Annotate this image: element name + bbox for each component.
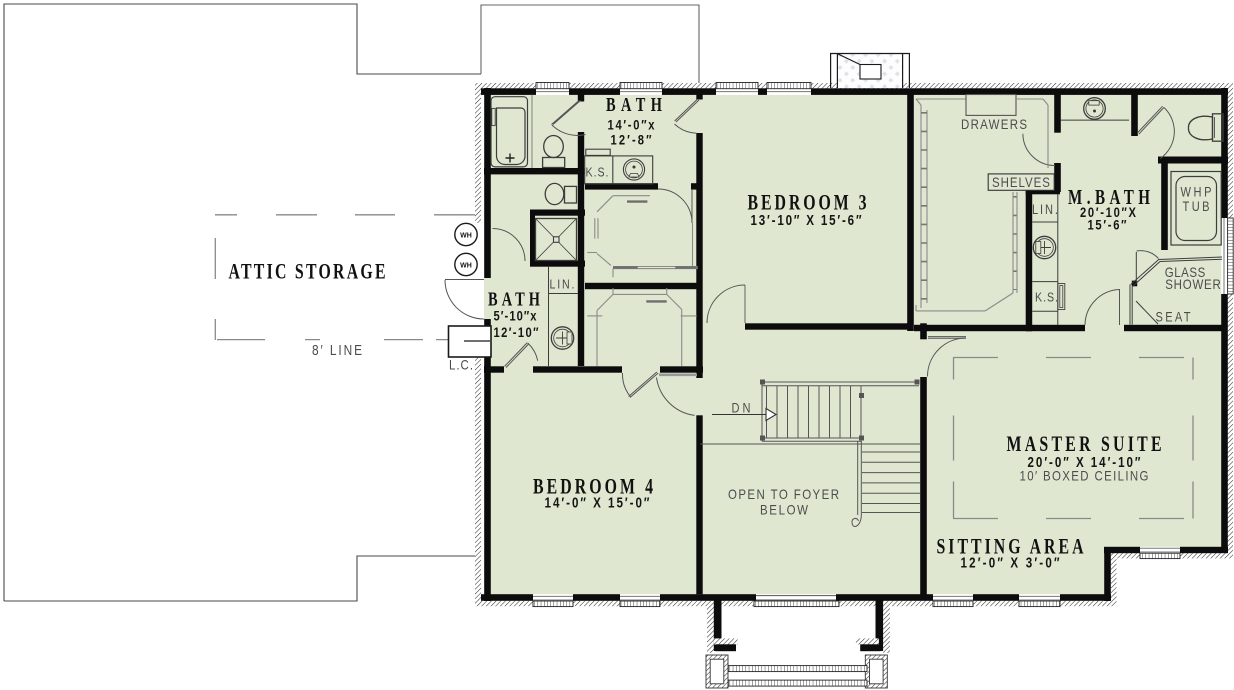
- svg-text:OPEN TO FOYER: OPEN TO FOYER: [728, 486, 839, 502]
- svg-text:DRAWERS: DRAWERS: [961, 116, 1027, 132]
- svg-text:WH: WH: [460, 263, 472, 270]
- svg-text:10′ BOXED CEILING: 10′ BOXED CEILING: [1020, 467, 1149, 483]
- svg-text:15′-6″: 15′-6″: [1087, 217, 1126, 232]
- svg-text:LIN.: LIN.: [549, 276, 574, 291]
- svg-text:K.S.: K.S.: [586, 164, 609, 179]
- svg-text:12′-0″ X 3′-0″: 12′-0″ X 3′-0″: [960, 554, 1060, 571]
- svg-text:SHELVES: SHELVES: [992, 174, 1050, 190]
- svg-text:SHOWER: SHOWER: [1165, 276, 1221, 292]
- svg-text:LIN.: LIN.: [1032, 202, 1058, 217]
- svg-text:K.S.: K.S.: [1035, 289, 1058, 304]
- svg-text:13′-10″ X 15′-6″: 13′-10″ X 15′-6″: [750, 212, 862, 229]
- svg-text:WHP: WHP: [1181, 184, 1212, 199]
- svg-text:BELOW: BELOW: [760, 501, 809, 517]
- svg-text:WH: WH: [460, 233, 472, 240]
- svg-text:L.C.: L.C.: [449, 356, 473, 372]
- svg-text:TUB: TUB: [1183, 199, 1210, 214]
